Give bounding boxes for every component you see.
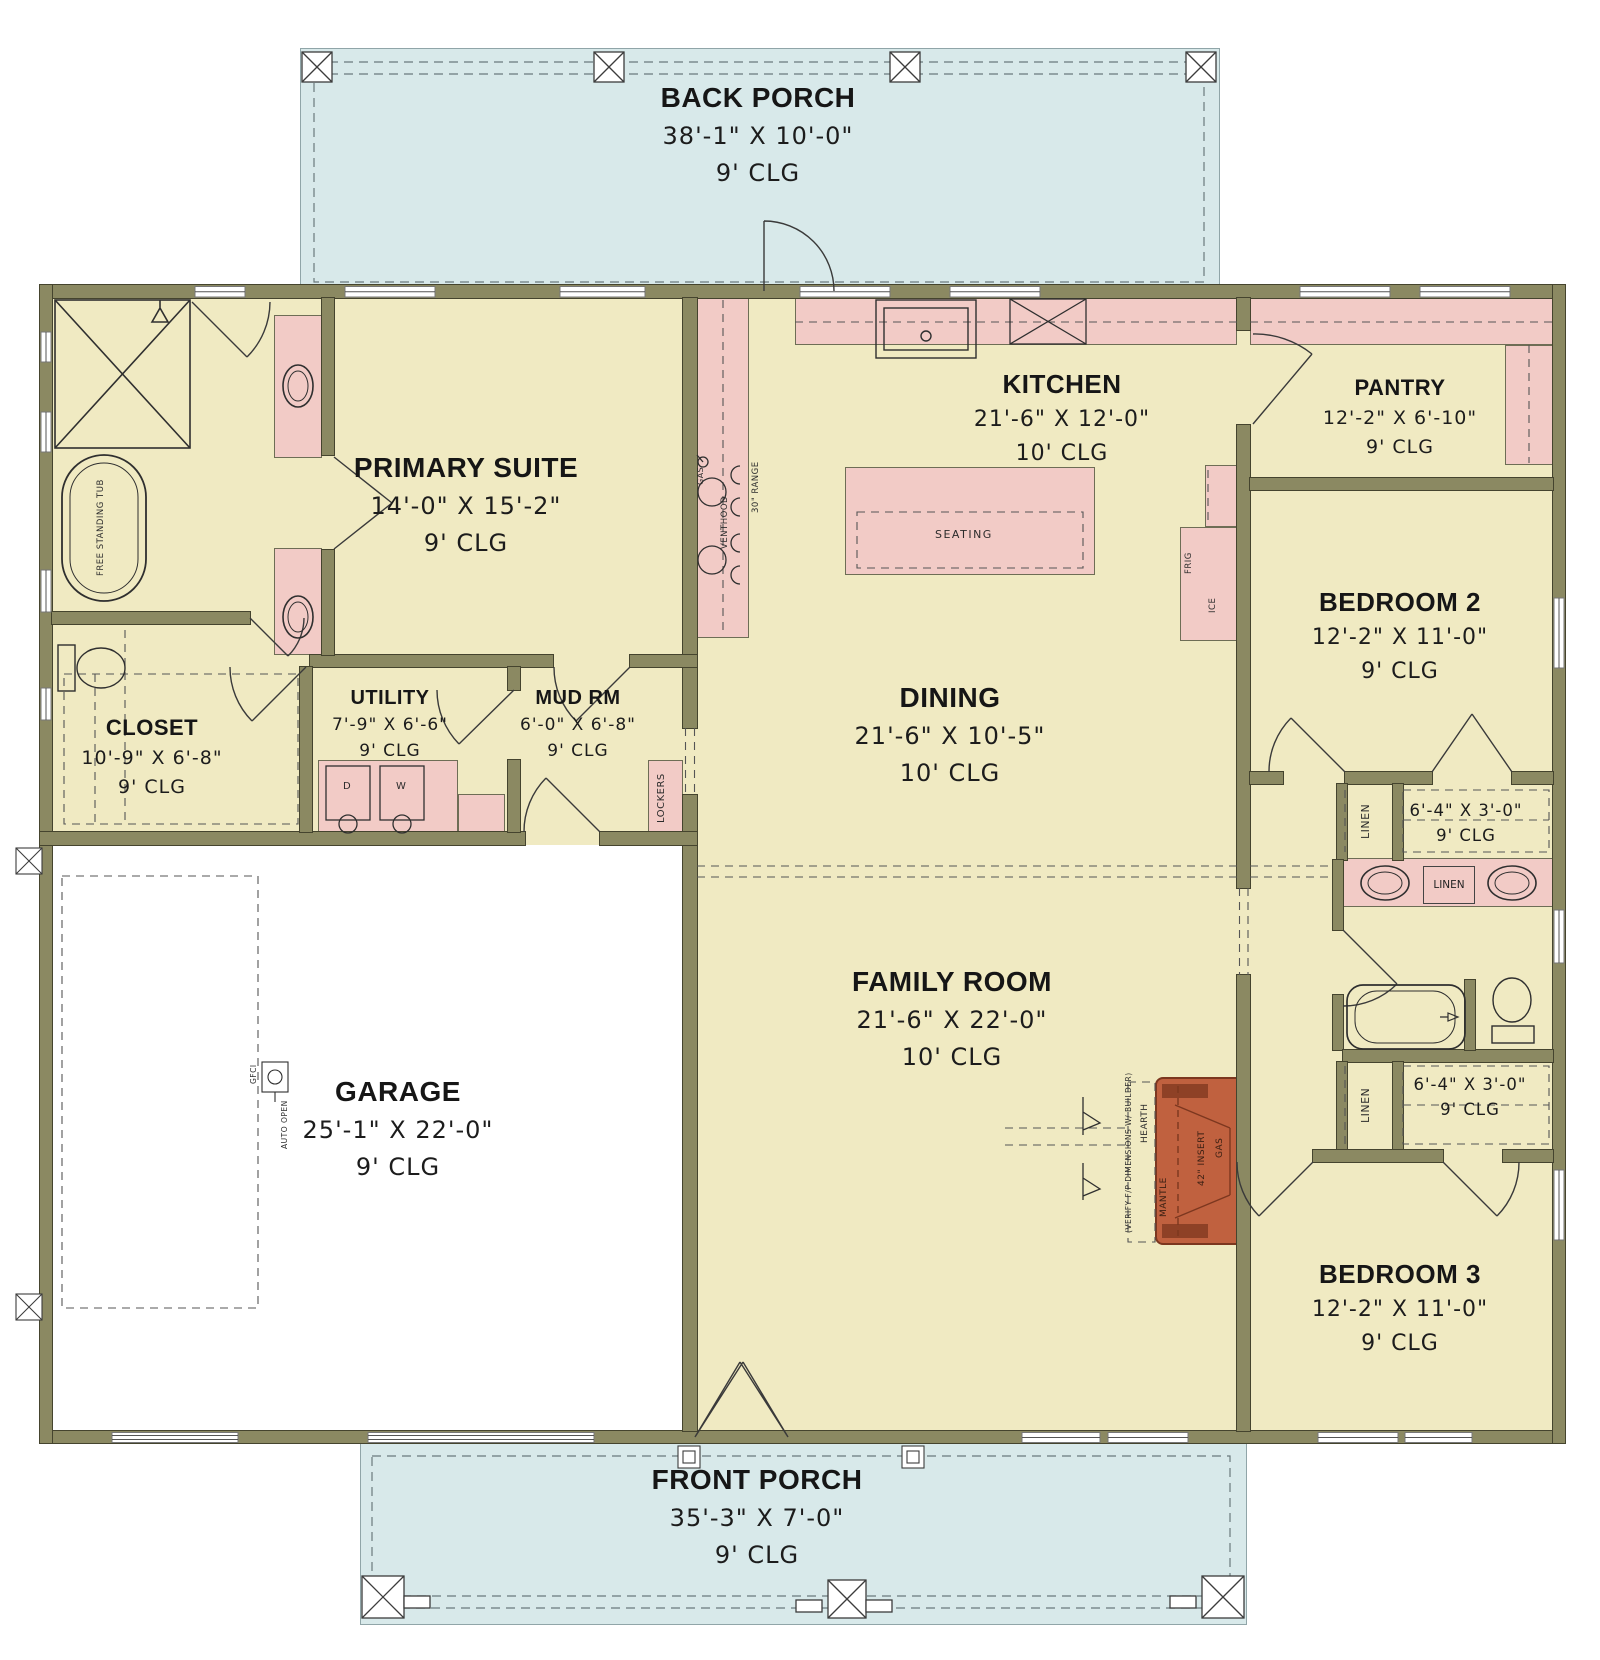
kitchen-venthood-counter bbox=[697, 298, 749, 638]
refrigerator-stub bbox=[1205, 465, 1238, 527]
primary-vanity-1 bbox=[274, 315, 322, 458]
pantry-counter-top bbox=[1250, 298, 1553, 345]
section-marker-icons bbox=[16, 848, 42, 1320]
fireplace bbox=[1155, 1077, 1243, 1245]
wall-tub-toilet bbox=[1465, 980, 1475, 1050]
wall-bath-divider bbox=[52, 612, 250, 624]
wall-bed2-bottom-b bbox=[1345, 772, 1432, 784]
front-porch-area bbox=[360, 1443, 1247, 1625]
wall-bed2-bottom-c bbox=[1512, 772, 1553, 784]
wall-exterior-left bbox=[40, 285, 52, 1443]
wall-pantry-bottom bbox=[1250, 478, 1553, 490]
wall-bed3-top-a bbox=[1313, 1150, 1443, 1162]
wall-bed3-top-b bbox=[1503, 1150, 1553, 1162]
wall-hall-bath-b bbox=[1333, 995, 1343, 1050]
wall-linen1-right bbox=[1393, 784, 1403, 860]
primary-vanity-2 bbox=[274, 548, 322, 655]
wall-utility-mud-a bbox=[508, 667, 520, 690]
washer-dryer-cabinet bbox=[318, 760, 458, 832]
wall-bath-bottom bbox=[1343, 1050, 1553, 1062]
lockers-cabinet bbox=[648, 760, 683, 832]
wall-vanity-a bbox=[322, 298, 334, 455]
wall-center-right-c bbox=[1237, 975, 1250, 1431]
wall-exterior-top bbox=[40, 285, 1565, 298]
back-porch-area bbox=[300, 48, 1220, 288]
fireplace-corbel-top bbox=[1162, 1084, 1208, 1098]
wall-utility-mud-b bbox=[508, 760, 520, 832]
wall-exterior-right bbox=[1553, 285, 1565, 1443]
floor-plan-page: { "plan_title": "Single-story house floo… bbox=[0, 0, 1600, 1660]
wall-vanity-b bbox=[322, 550, 334, 655]
wall-linen2-left bbox=[1337, 1062, 1347, 1150]
wall-linen2-right bbox=[1393, 1062, 1403, 1150]
pantry-counter-right bbox=[1505, 345, 1553, 465]
wall-leftwing-garage-b bbox=[600, 832, 697, 845]
kitchen-island bbox=[845, 467, 1095, 575]
wall-linen1-left bbox=[1337, 784, 1347, 860]
wall-leftwing-center-b bbox=[683, 795, 697, 1431]
mudroom-bench bbox=[458, 794, 505, 832]
refrigerator bbox=[1180, 527, 1238, 641]
wall-leftwing-garage-a bbox=[40, 832, 525, 845]
wall-hall-bath-a bbox=[1333, 860, 1343, 930]
wall-closet-utility bbox=[300, 667, 312, 832]
fireplace-corbel-bottom bbox=[1162, 1224, 1208, 1238]
wall-center-right-b bbox=[1237, 425, 1250, 888]
wall-exterior-bottom bbox=[40, 1431, 1565, 1443]
wall-suite-bottom-a bbox=[310, 655, 553, 667]
wall-suite-bottom-b bbox=[630, 655, 697, 667]
wall-bed2-bottom-a bbox=[1250, 772, 1283, 784]
kitchen-sink-counter bbox=[795, 298, 1237, 345]
wall-center-right-a bbox=[1237, 298, 1250, 330]
hall-bath-vanity bbox=[1343, 858, 1553, 907]
garage-floor-area bbox=[52, 845, 683, 1431]
